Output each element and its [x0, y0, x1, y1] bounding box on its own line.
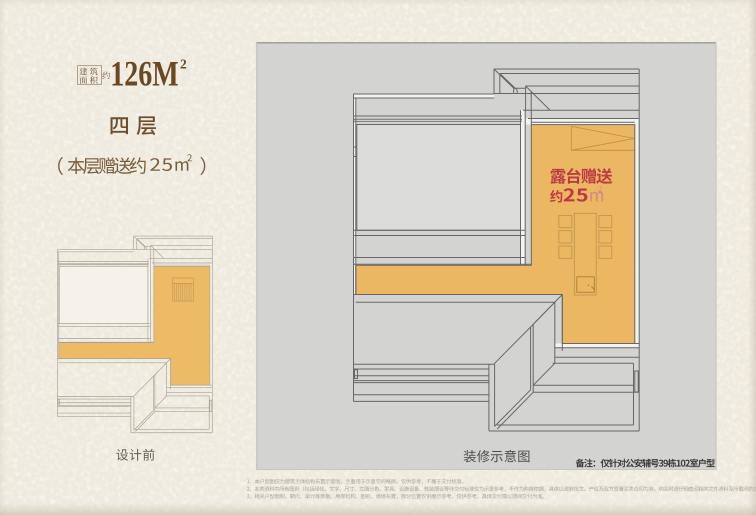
svg-text:2: 2	[180, 56, 187, 71]
svg-text:126M: 126M	[110, 53, 179, 93]
